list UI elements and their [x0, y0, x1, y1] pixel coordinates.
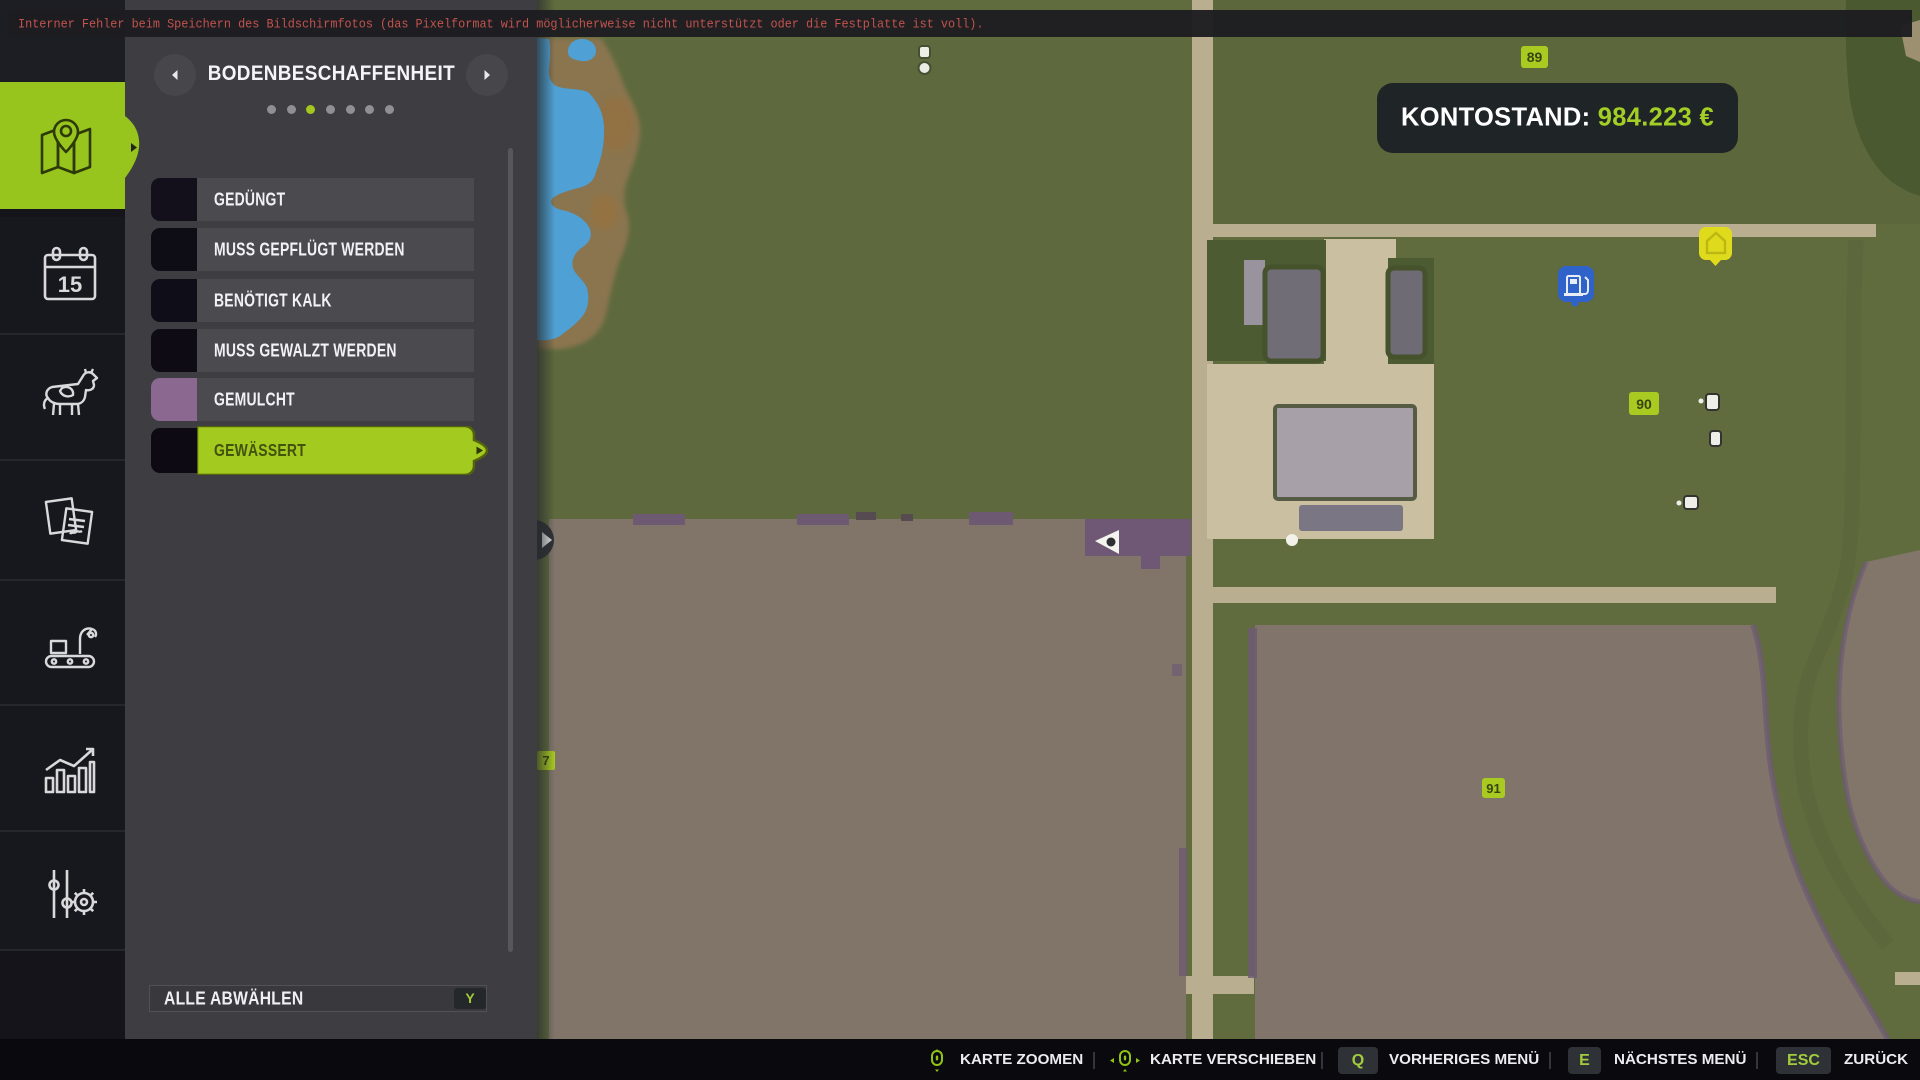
svg-text:90: 90: [1636, 396, 1652, 412]
svg-text:15: 15: [58, 272, 82, 297]
svg-text:GEWÄSSERT: GEWÄSSERT: [214, 440, 306, 460]
svg-text:89: 89: [1527, 49, 1543, 65]
svg-text:91: 91: [1486, 781, 1500, 796]
